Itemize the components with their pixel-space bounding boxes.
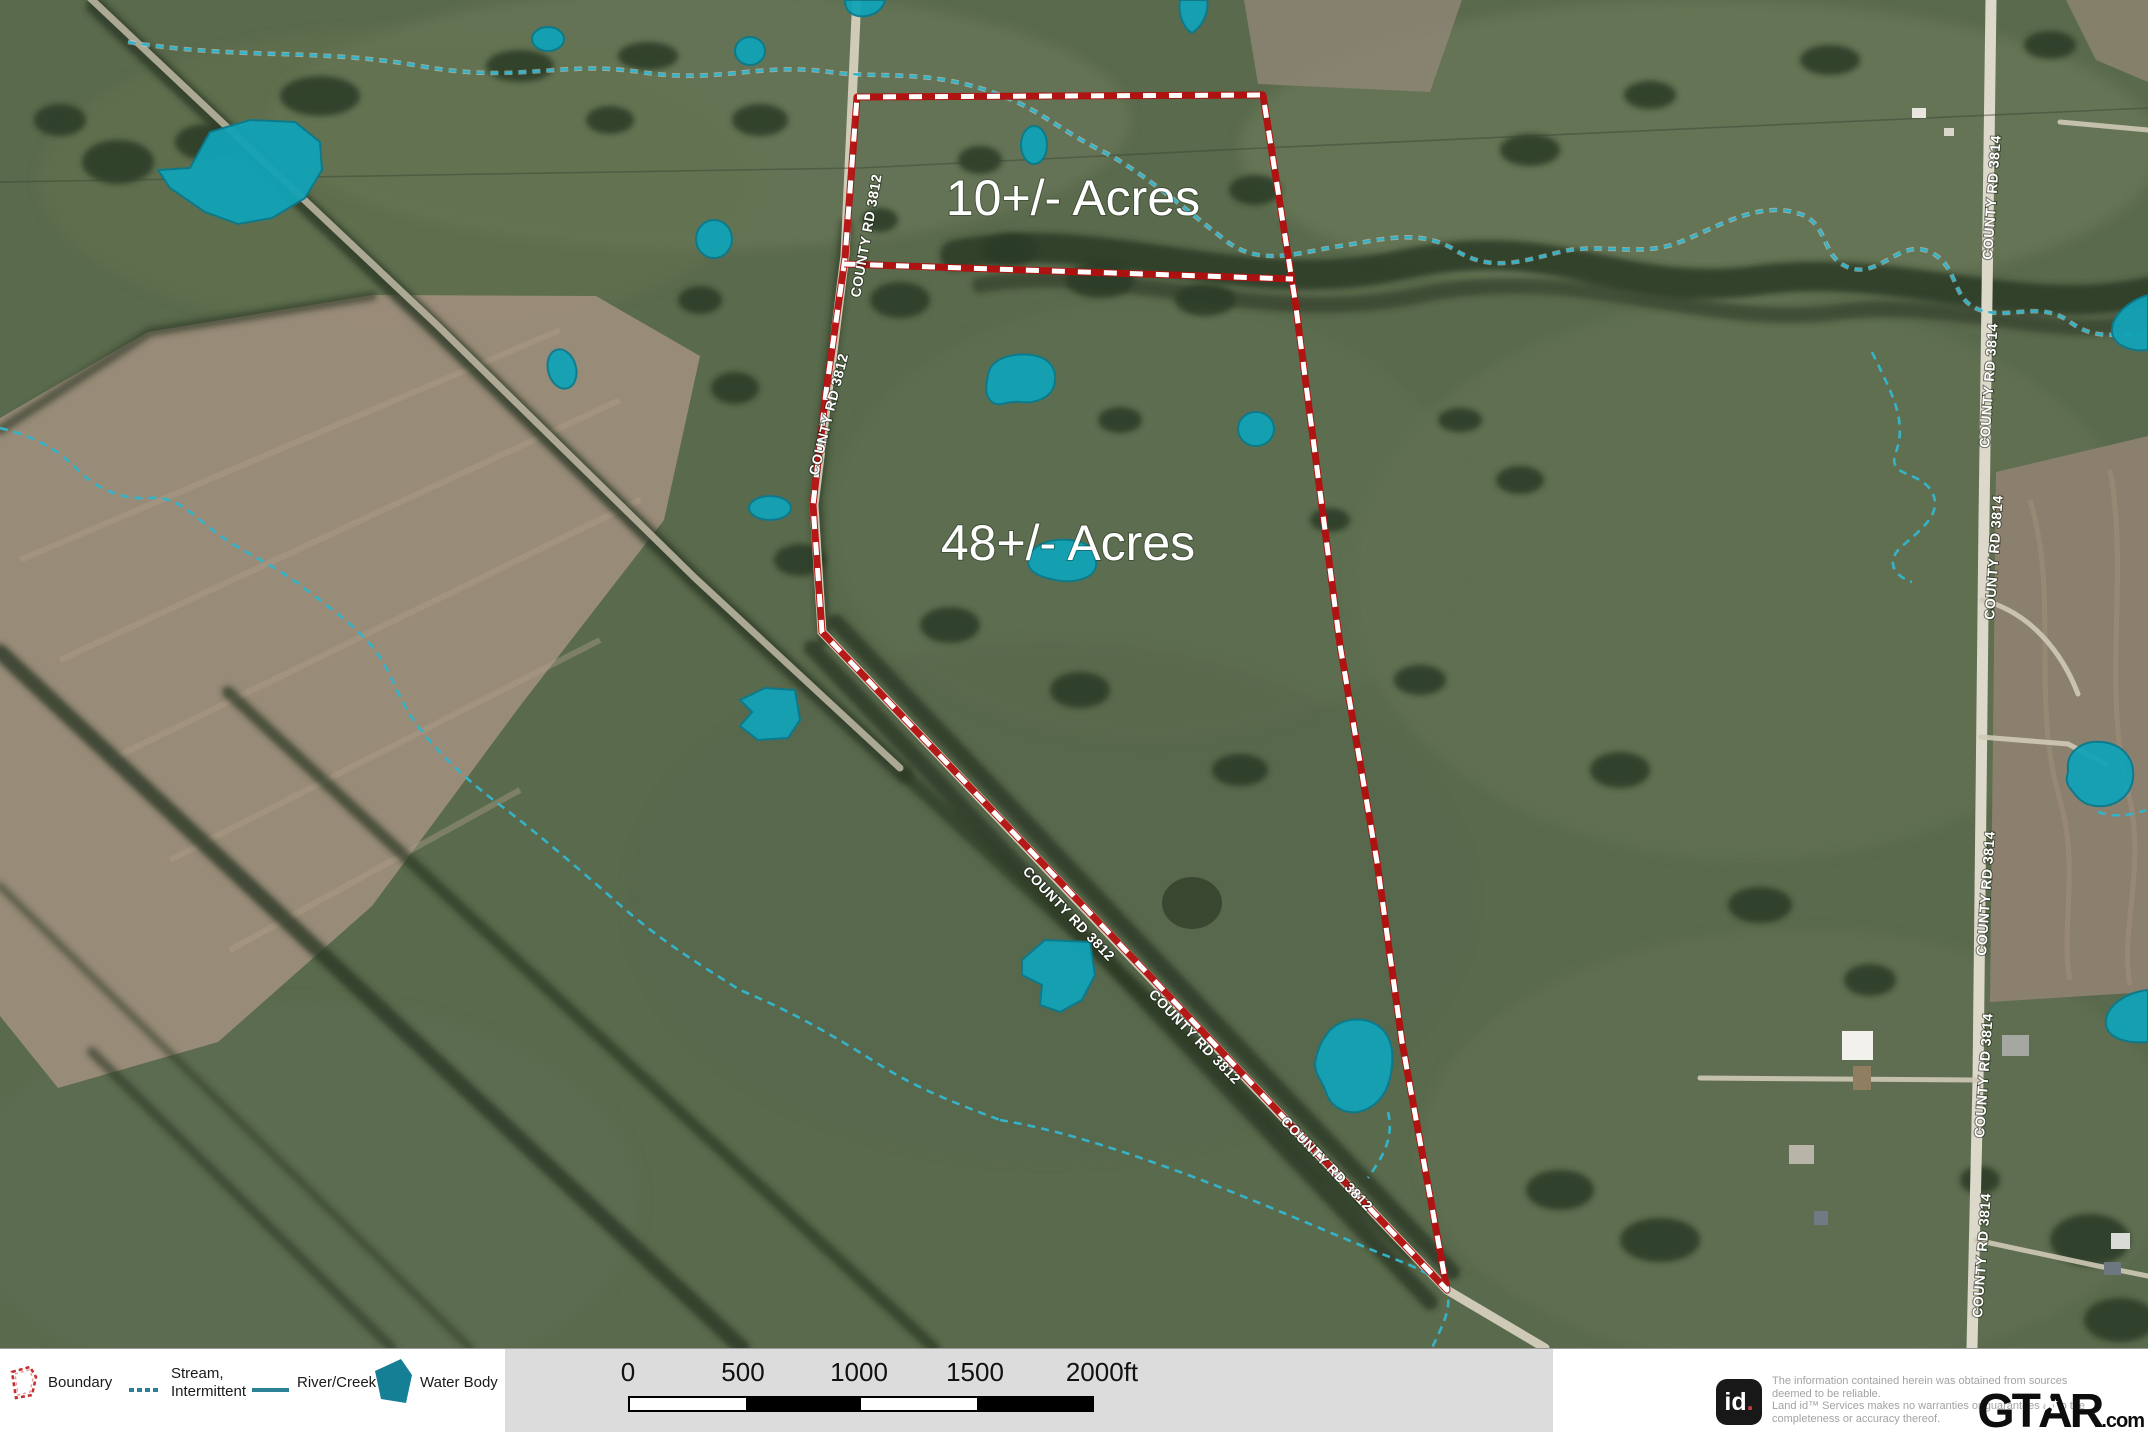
property-map-screen: 10+/- Acres 48+/- Acres COUNTY RD 3812 C… xyxy=(0,0,2148,1432)
pond xyxy=(696,220,732,258)
pond xyxy=(1021,126,1047,164)
scale-tick-1000: 1000 xyxy=(830,1357,888,1388)
scale-segment xyxy=(977,1398,1093,1410)
scale-segment xyxy=(630,1398,746,1410)
land-id-logo-dot: . xyxy=(1747,1388,1754,1417)
land-id-logo: id. xyxy=(1716,1379,1762,1425)
scale-segment xyxy=(746,1398,862,1410)
aerial-map: 10+/- Acres 48+/- Acres COUNTY RD 3812 C… xyxy=(0,0,2148,1348)
water-body-legend-icon xyxy=(371,1357,413,1407)
gtar-logo-prefix: GT xyxy=(1977,1385,2038,1432)
scale-tick-0: 0 xyxy=(621,1357,635,1388)
boundary-legend-icon xyxy=(8,1365,38,1401)
gtar-logo-a: A★ xyxy=(2038,1384,2070,1432)
legend-label-stream-2: Intermittent xyxy=(171,1383,246,1400)
gtar-logo-suffix: R xyxy=(2070,1385,2102,1432)
pond xyxy=(2067,742,2134,806)
scale-segment xyxy=(861,1398,977,1410)
map-canvas: 10+/- Acres 48+/- Acres COUNTY RD 3812 C… xyxy=(0,0,2148,1348)
legend-label-boundary: Boundary xyxy=(48,1374,112,1391)
legend-label-river: River/Creek xyxy=(297,1374,376,1391)
parcel-label-48: 48+/- Acres xyxy=(941,515,1195,571)
legend-label-water-body: Water Body xyxy=(420,1374,498,1391)
scale-bar: 0 500 1000 1500 2000ft xyxy=(505,1349,1553,1432)
river-legend-icon xyxy=(252,1386,289,1394)
pond xyxy=(749,496,791,520)
dark-pond xyxy=(1162,877,1222,929)
pond xyxy=(735,37,765,65)
scale-bar-segments xyxy=(628,1396,1094,1412)
gtar-logo-tld: .com xyxy=(2101,1410,2144,1432)
scale-tick-2000ft: 2000ft xyxy=(1066,1357,1138,1388)
pond xyxy=(532,27,564,51)
bottom-bar: Boundary Stream, Intermittent River/Cree… xyxy=(0,1348,2148,1432)
land-id-logo-text: id xyxy=(1724,1388,1746,1417)
gtar-logo: GTA★R.com xyxy=(1977,1384,2144,1432)
pond xyxy=(986,354,1055,404)
disclaimer-panel: id. The information contained herein was… xyxy=(1553,1349,2148,1432)
pond xyxy=(740,688,800,740)
pond xyxy=(1238,412,1274,446)
star-icon: ★ xyxy=(2041,1393,2058,1416)
parcel-label-10: 10+/- Acres xyxy=(946,170,1200,226)
stream-legend-icon xyxy=(129,1386,161,1394)
scale-tick-1500: 1500 xyxy=(946,1357,1004,1388)
legend-label-stream-1: Stream, xyxy=(171,1365,224,1382)
scale-tick-500: 500 xyxy=(721,1357,764,1388)
legend-bar: Boundary Stream, Intermittent River/Cree… xyxy=(0,1349,505,1432)
